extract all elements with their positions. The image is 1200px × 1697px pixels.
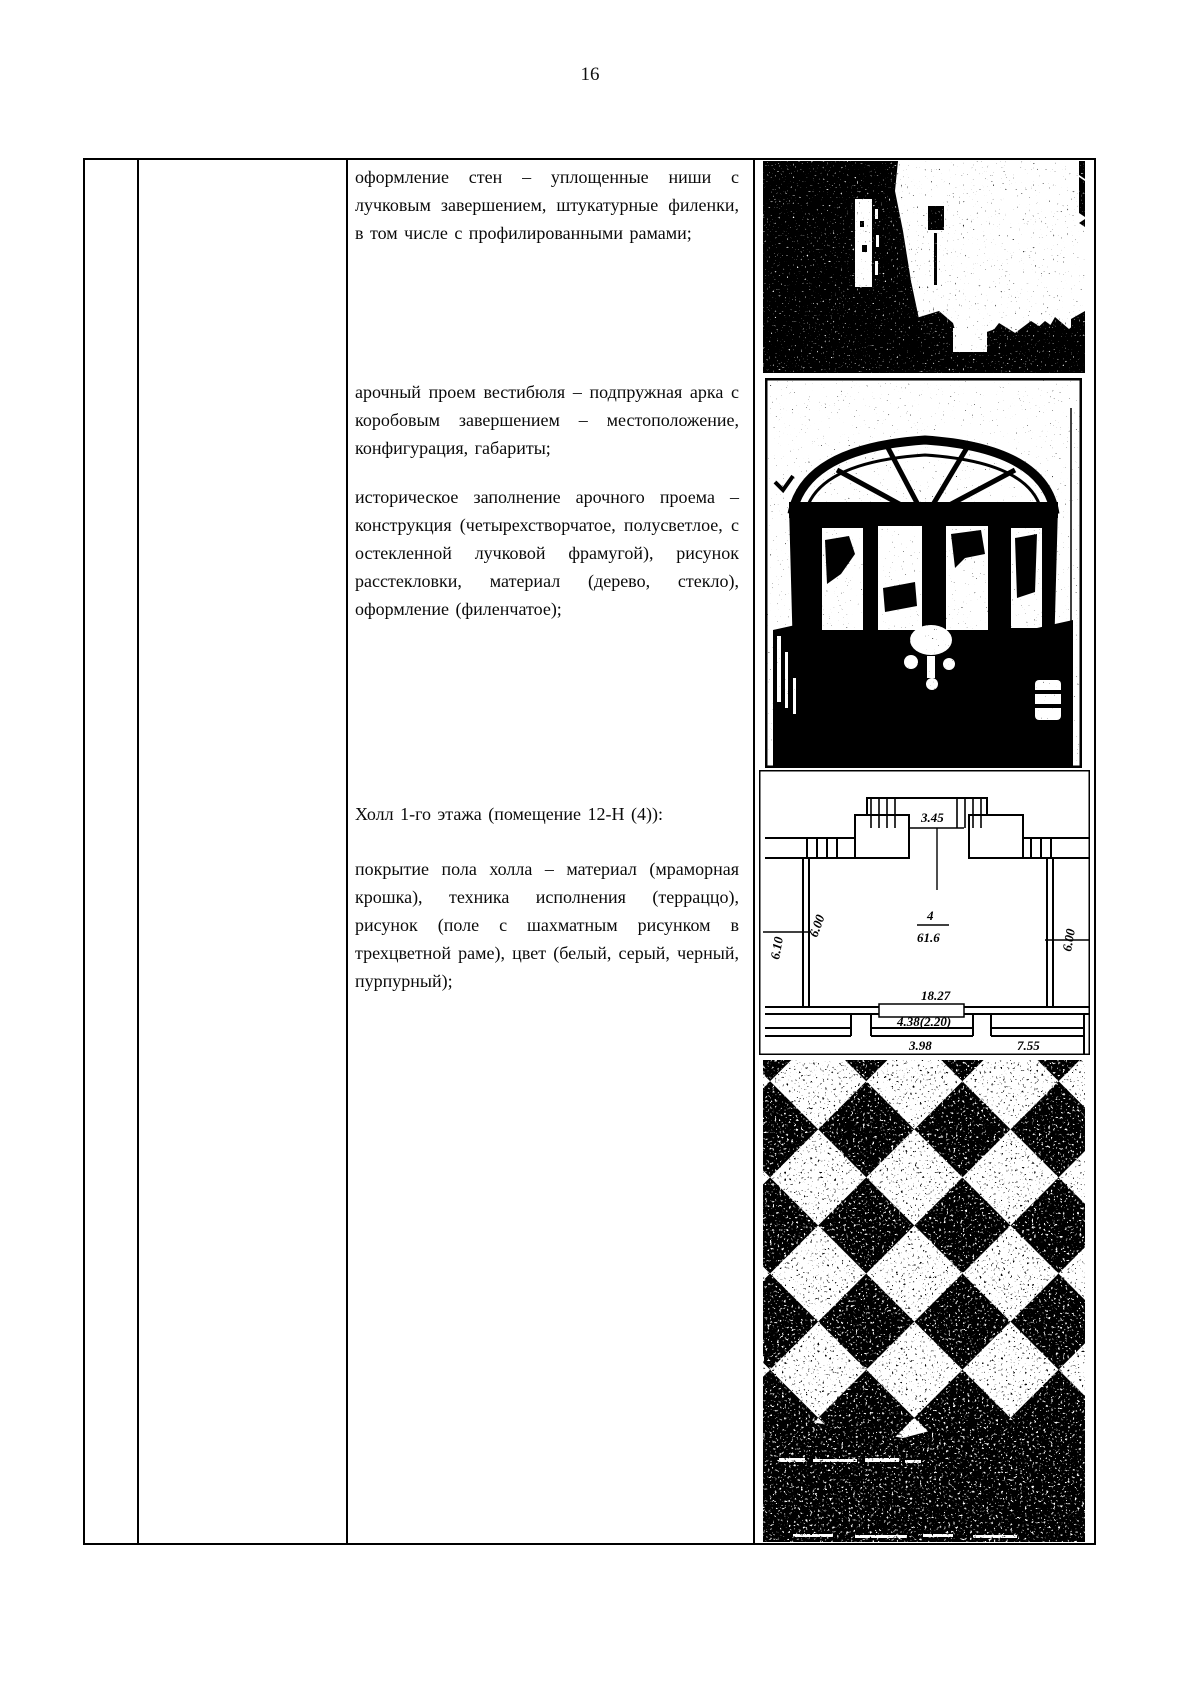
content-table: оформление стен – уплощенные ниши с лучк… (83, 158, 1096, 1545)
paragraph-arch-opening: арочный проем вестибюля – подпружная арк… (355, 378, 739, 462)
plan-label-door-width: 4.38(2.20) (896, 1014, 951, 1029)
floor-plan-drawing: 3.45 4 61.6 6.10 6.00 6.00 18.27 4.38(2.… (759, 770, 1090, 1055)
page-sheet: 16 оформление стен – уплощенные ниши с л… (0, 0, 1200, 1697)
grain-black (763, 161, 1085, 373)
plan-label-bottom-width: 18.27 (921, 988, 951, 1003)
checkerboard-floor-photo (763, 1060, 1085, 1542)
plan-label-bottom-right: 7.55 (1017, 1038, 1040, 1053)
wall-niche-photo (763, 161, 1085, 373)
plan-label-top-width: 3.45 (920, 810, 944, 825)
column-divider-1 (137, 160, 139, 1543)
grain-black (763, 1060, 1085, 1542)
plan-label-bottom-left: 3.98 (908, 1038, 932, 1053)
plan-label-room-area: 61.6 (917, 930, 940, 945)
description-cell: оформление стен – уплощенные ниши с лучк… (355, 160, 739, 1543)
paragraph-hall-heading: Холл 1-го этажа (помещение 12-Н (4)): (355, 800, 739, 828)
column-divider-3 (753, 160, 755, 1543)
arched-doorway-photo (765, 378, 1082, 768)
paragraph-arch-infill: историческое заполнение арочного проема … (355, 483, 739, 623)
paragraph-floor-finish: покрытие пола холла – материал (мраморна… (355, 855, 739, 995)
paragraph-wall-decor: оформление стен – уплощенные ниши с лучк… (355, 163, 739, 247)
grain-black (765, 378, 1082, 768)
plan-label-room-number: 4 (926, 908, 934, 923)
column-divider-2 (346, 160, 348, 1543)
page-number: 16 (555, 64, 625, 86)
